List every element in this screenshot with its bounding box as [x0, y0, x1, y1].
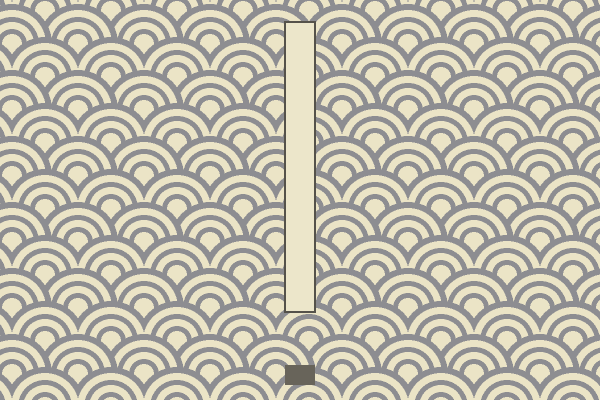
obstacle-pillar	[284, 21, 316, 313]
game-scene[interactable]	[0, 0, 600, 400]
player-block	[285, 365, 315, 385]
